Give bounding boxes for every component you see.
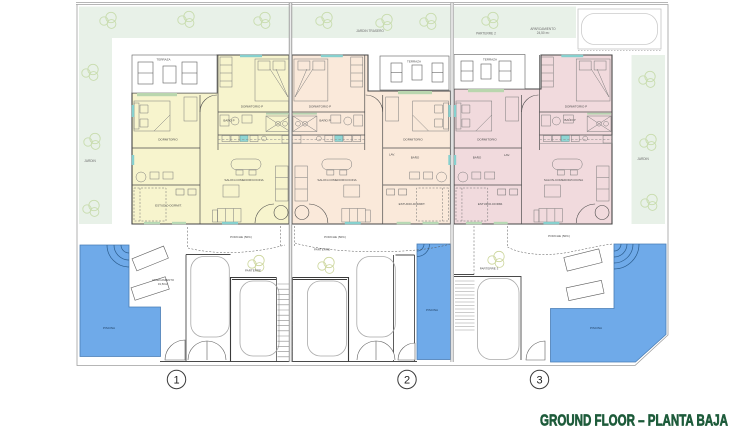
svg-text:ESTUDIO-DORMI.: ESTUDIO-DORMI.: [478, 202, 503, 206]
svg-text:PORCHE (50%): PORCHE (50%): [324, 235, 346, 239]
svg-text:DORMITORIO: DORMITORIO: [477, 138, 497, 142]
svg-text:ESTUDIO-DORMIT.: ESTUDIO-DORMIT.: [399, 202, 426, 206]
svg-text:DORMITORIO P: DORMITORIO P: [565, 105, 587, 109]
svg-text:PARTERRE: PARTERRE: [245, 269, 261, 273]
svg-text:BAÑO P: BAÑO P: [319, 118, 330, 123]
svg-text:2: 2: [404, 375, 410, 387]
svg-text:LAV.: LAV.: [504, 153, 510, 157]
svg-text:TERRAZA: TERRAZA: [407, 60, 421, 64]
svg-text:PISCINA: PISCINA: [426, 308, 438, 312]
svg-text:PARTERRE 2: PARTERRE 2: [476, 32, 496, 36]
svg-text:LAV.: LAV.: [389, 153, 395, 157]
svg-text:PORCHE (50%): PORCHE (50%): [230, 235, 252, 239]
svg-text:PARTERRE: PARTERRE: [314, 248, 330, 252]
svg-text:SALON-COMEDOR/COCINA: SALON-COMEDOR/COCINA: [317, 178, 356, 182]
svg-text:24,50 m²: 24,50 m²: [537, 31, 550, 35]
svg-text:1: 1: [173, 375, 179, 387]
svg-text:PISCINA: PISCINA: [590, 326, 602, 330]
svg-text:TERRAZA: TERRAZA: [156, 58, 170, 62]
svg-text:PISCINA: PISCINA: [103, 326, 115, 330]
svg-text:BAÑO: BAÑO: [473, 155, 482, 160]
svg-text:3: 3: [536, 375, 542, 387]
svg-text:DORMITORIO: DORMITORIO: [403, 138, 423, 142]
svg-text:DORMITORIO P: DORMITORIO P: [309, 105, 331, 109]
svg-text:DORMITORIO P: DORMITORIO P: [241, 105, 263, 109]
svg-text:BAÑO: BAÑO: [411, 155, 420, 160]
svg-text:PARTERRE 3: PARTERRE 3: [480, 267, 499, 271]
svg-text:BAÑO P: BAÑO P: [223, 118, 234, 123]
svg-text:19,50m²: 19,50m²: [158, 282, 168, 286]
svg-text:ESTUDIO-DORMIT.: ESTUDIO-DORMIT.: [155, 204, 182, 208]
svg-text:BAÑO P: BAÑO P: [564, 117, 575, 122]
svg-text:DORMITORIO: DORMITORIO: [158, 138, 178, 142]
svg-text:SALON-COMEDOR/COCINA: SALON-COMEDOR/COCINA: [544, 178, 583, 182]
svg-text:SALON-COMEDOR/COCINA: SALON-COMEDOR/COCINA: [224, 178, 263, 182]
svg-text:GROUND FLOOR – PLANTA BAJA: GROUND FLOOR – PLANTA BAJA: [540, 413, 728, 430]
svg-text:TERRAZA: TERRAZA: [483, 58, 497, 62]
svg-text:JARDIN: JARDIN: [84, 159, 96, 163]
svg-text:JARDIN TRASERO: JARDIN TRASERO: [356, 29, 384, 33]
svg-text:JARDIN: JARDIN: [637, 157, 649, 161]
svg-text:PORCHE (50%): PORCHE (50%): [548, 234, 570, 238]
